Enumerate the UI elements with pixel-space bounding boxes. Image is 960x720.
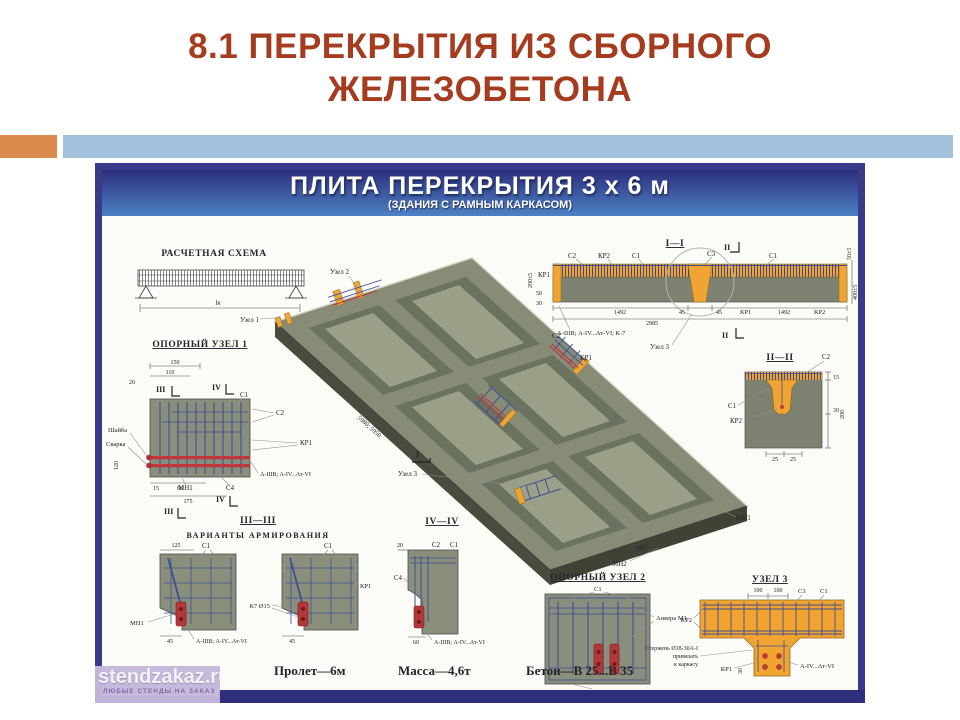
node3-rod1: Стержень Ø18-30А-I	[645, 646, 698, 652]
node1-c4: С4	[226, 484, 235, 492]
node1-c2: С2	[276, 409, 285, 417]
accent-bar-blue	[63, 135, 953, 158]
slab-kr1-label: КР1	[580, 354, 593, 362]
node1-d120: 120	[114, 461, 120, 470]
watermark-site: stendzakaz.ru	[95, 666, 220, 688]
node3-d100b: 100	[774, 588, 783, 594]
node1-c1: С1	[240, 391, 249, 399]
section-I-I: I—I С2 КР2 С1 С3 II С1	[528, 239, 858, 351]
node3-kr1: КР1	[721, 666, 732, 673]
node1-weld-label: Сварка	[106, 441, 126, 448]
node1-d150: 150	[171, 360, 180, 366]
node3-rod3: к каркасу	[674, 662, 698, 668]
support-left	[139, 286, 153, 298]
node3-steel: А-IV...Ат-VI	[800, 663, 834, 670]
sec11-d1492b: 1492	[778, 310, 790, 316]
info-row: Пролет—6м Масса—4,6т Бетон—В 25...В 35	[274, 663, 634, 678]
poster-image: ПЛИТА ПЕРЕКРЫТИЯ 3 х 6 м (ЗДАНИЯ С РАМНЫ…	[95, 163, 865, 703]
sec11-mark-II-bottom: II	[722, 331, 728, 340]
sec33-d125: 125	[172, 543, 181, 549]
slab-mn2-label: МН2	[612, 560, 627, 568]
sec33-d45a: 45	[167, 639, 173, 645]
info-span: Пролет—6м	[274, 663, 346, 678]
sec33-d45b: 45	[289, 639, 295, 645]
node2-title: ОПОРНЫЙ УЗЕЛ 2	[550, 571, 645, 583]
node3-title: УЗЕЛ 3	[752, 575, 788, 585]
sec33-kr1: КР1	[360, 583, 371, 590]
poster-subtitle: (ЗДАНИЯ С РАМНЫМ КАРКАСОМ)	[102, 199, 858, 211]
node1-mark-IV-top: IV	[212, 383, 221, 392]
watermark-tagline: ЛЮБЫЕ СТЕНДЫ НА ЗАКАЗ	[95, 688, 220, 695]
node2-c1: С1	[594, 586, 602, 593]
node1-title: ОПОРНЫЙ УЗЕЛ 1	[152, 338, 247, 350]
poster-header: ПЛИТА ПЕРЕКРЫТИЯ 3 х 6 м (ЗДАНИЯ С РАМНЫ…	[102, 170, 858, 216]
sec11-c2: С2	[568, 252, 577, 260]
sec11-d50: 50	[536, 291, 542, 297]
sec11-d1492a: 1492	[614, 310, 626, 316]
sec33-c1a: С1	[202, 542, 211, 550]
section-III-III-variants: III—III ВАРИАНТЫ АРМИРОВАНИЯ 125 С1 МН1 …	[130, 516, 371, 645]
slab-node3-label: Узел 3	[398, 470, 417, 478]
sec44-d60: 60	[413, 640, 419, 646]
node1-d110: 110	[166, 370, 175, 376]
sec11-c1a: С1	[632, 252, 641, 260]
page-title-line1: 8.1 ПЕРЕКРЫТИЯ ИЗ СБОРНОГО	[0, 26, 960, 69]
node1-d20: 20	[129, 380, 135, 386]
accent-bar-orange	[0, 135, 57, 158]
slab-node2-label: Узел 2	[330, 268, 349, 276]
sec44-title: IV—IV	[425, 517, 459, 527]
node1-d15: 15	[153, 486, 159, 492]
node3-rod2: привязать	[673, 654, 698, 660]
sec33-c1b: С1	[324, 542, 333, 550]
calc-scheme: РАСЧЕТНАЯ СХЕМА lк	[135, 249, 307, 312]
node3-d30: 30	[738, 668, 744, 674]
sec22-d15: 15	[833, 375, 839, 381]
node1-mark-III-bottom: III	[164, 507, 173, 516]
sec44-c1: С1	[450, 541, 459, 549]
node1-mark-IV-bottom: IV	[216, 495, 225, 504]
sec11-d50r: 50±5	[847, 248, 853, 260]
sec11-c1b: С1	[769, 252, 778, 260]
support-right	[289, 286, 303, 298]
watermark: stendzakaz.ru ЛЮБЫЕ СТЕНДЫ НА ЗАКАЗ	[95, 666, 220, 703]
sec33-steel: А-IIIВ; А-IV...Ат-VI	[196, 639, 247, 645]
sec22-c1: С1	[728, 402, 737, 410]
sec11-kr1a: КР1	[538, 271, 551, 279]
page-title: 8.1 ПЕРЕКРЫТИЯ ИЗ СБОРНОГО ЖЕЛЕЗОБЕТОНА	[0, 26, 960, 111]
sec11-c3: С3	[707, 250, 716, 258]
slab-mn1-label: МН1	[736, 514, 751, 522]
sec33-subtitle: ВАРИАНТЫ АРМИРОВАНИЯ	[186, 531, 329, 540]
support-node-1: ОПОРНЫЙ УЗЕЛ 1 150 110 20 III IV Ша	[106, 338, 313, 518]
node1-kr1: КР1	[300, 439, 313, 447]
sec33-title: III—III	[240, 516, 276, 526]
section-II-II: II—II С2 С1 КР2 15 200 30	[728, 353, 846, 463]
sec22-kr2: КР2	[730, 417, 743, 425]
sec22-d25a: 25	[772, 457, 778, 463]
node3-kr2: КР2	[681, 617, 692, 624]
page-title-line2: ЖЕЛЕЗОБЕТОНА	[0, 69, 960, 112]
node1-steel: А-IIIВ; А-IV...Ат-VI	[260, 472, 311, 478]
span-label: lк	[215, 299, 221, 307]
sec11-steel: А-IIIВ; А-IV...Ат-VI; К-7	[557, 330, 626, 337]
info-concrete: Бетон—В 25...В 35	[526, 663, 634, 678]
node-3-detail: УЗЕЛ 3 100 100 С3 С1 КР2	[645, 575, 844, 676]
sec11-kr1b: КР1	[740, 309, 751, 316]
sec22-c2: С2	[822, 353, 831, 361]
sec44-steel: А-IIIВ; А-IV...Ат-VI	[434, 640, 485, 646]
poster-footer-band	[218, 690, 865, 703]
sec11-d45b: 45	[716, 310, 722, 316]
node1-mark-III-top: III	[156, 385, 165, 394]
node3-c3: С3	[798, 588, 806, 595]
sec33-k7: К7 Ø15	[250, 603, 270, 610]
sec44-c4: С4	[394, 574, 403, 582]
sec22-d25b: 25	[790, 457, 796, 463]
sec11-kr2b: КР2	[814, 309, 825, 316]
slide: 8.1 ПЕРЕКРЫТИЯ ИЗ СБОРНОГО ЖЕЛЕЗОБЕТОНА …	[0, 0, 960, 720]
section-mark-I: I	[416, 450, 419, 459]
sec22-d200: 200	[840, 410, 846, 419]
sec11-mark-II-top: II	[724, 243, 730, 252]
poster-drawing: РАСЧЕТНАЯ СХЕМА lк	[102, 216, 858, 696]
sec44-c2: С2	[432, 541, 441, 549]
node3-c1: С1	[820, 588, 828, 595]
sec11-d2985: 2985	[646, 321, 658, 327]
calc-scheme-title: РАСЧЕТНАЯ СХЕМА	[161, 249, 266, 259]
slab-node1-label: Узел 1	[240, 316, 259, 324]
sec11-title: I—I	[666, 239, 685, 249]
section-IV-IV: IV—IV 20 С2 С1 С4 60 А-IIIВ; А-IV...Ат-V…	[394, 517, 485, 646]
sec11-d30: 30	[536, 301, 542, 307]
sec44-d20: 20	[397, 543, 403, 549]
node1-d175: 175	[184, 499, 193, 505]
sec11-d400: 400±5	[853, 285, 858, 300]
sec11-kr2a: КР2	[598, 252, 611, 260]
node1-washer-label: Шайба	[108, 427, 127, 434]
sec11-node3-ref: Узел 3	[650, 343, 669, 351]
poster-title: ПЛИТА ПЕРЕКРЫТИЯ 3 х 6 м	[102, 170, 858, 201]
sec11-d200: 200±5	[528, 273, 534, 288]
node3-d100a: 100	[754, 588, 763, 594]
sec33-mn1: МН1	[130, 620, 144, 627]
sec22-d30: 30	[833, 408, 839, 414]
sec22-title: II—II	[766, 353, 793, 363]
sec11-d45a: 45	[679, 310, 685, 316]
info-mass: Масса—4,6т	[398, 663, 471, 678]
